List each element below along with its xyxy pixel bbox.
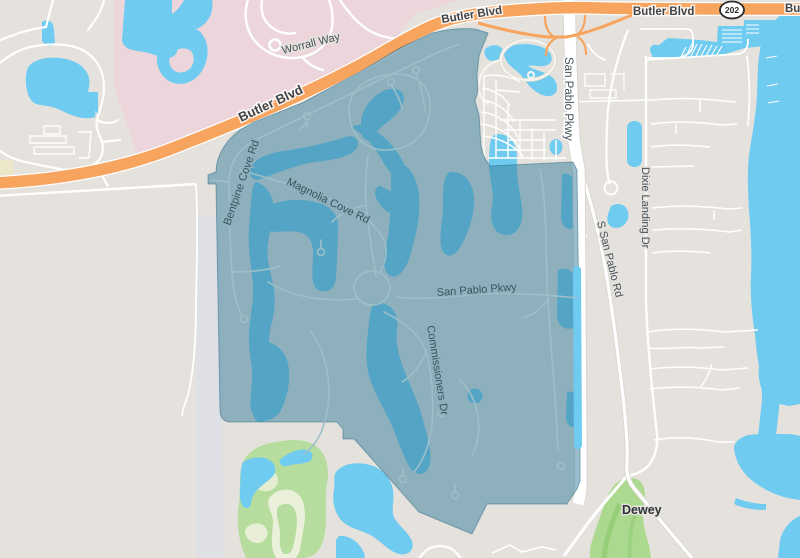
svg-text:San Pablo Pkwy: San Pablo Pkwy <box>562 57 574 141</box>
svg-text:Butler Blvd: Butler Blvd <box>633 6 694 18</box>
svg-text:202: 202 <box>725 5 739 15</box>
svg-text:Butler Blv: Butler Blv <box>785 3 800 15</box>
svg-text:Dixie Landing Dr: Dixie Landing Dr <box>639 167 651 249</box>
svg-text:Dewey: Dewey <box>622 503 662 517</box>
